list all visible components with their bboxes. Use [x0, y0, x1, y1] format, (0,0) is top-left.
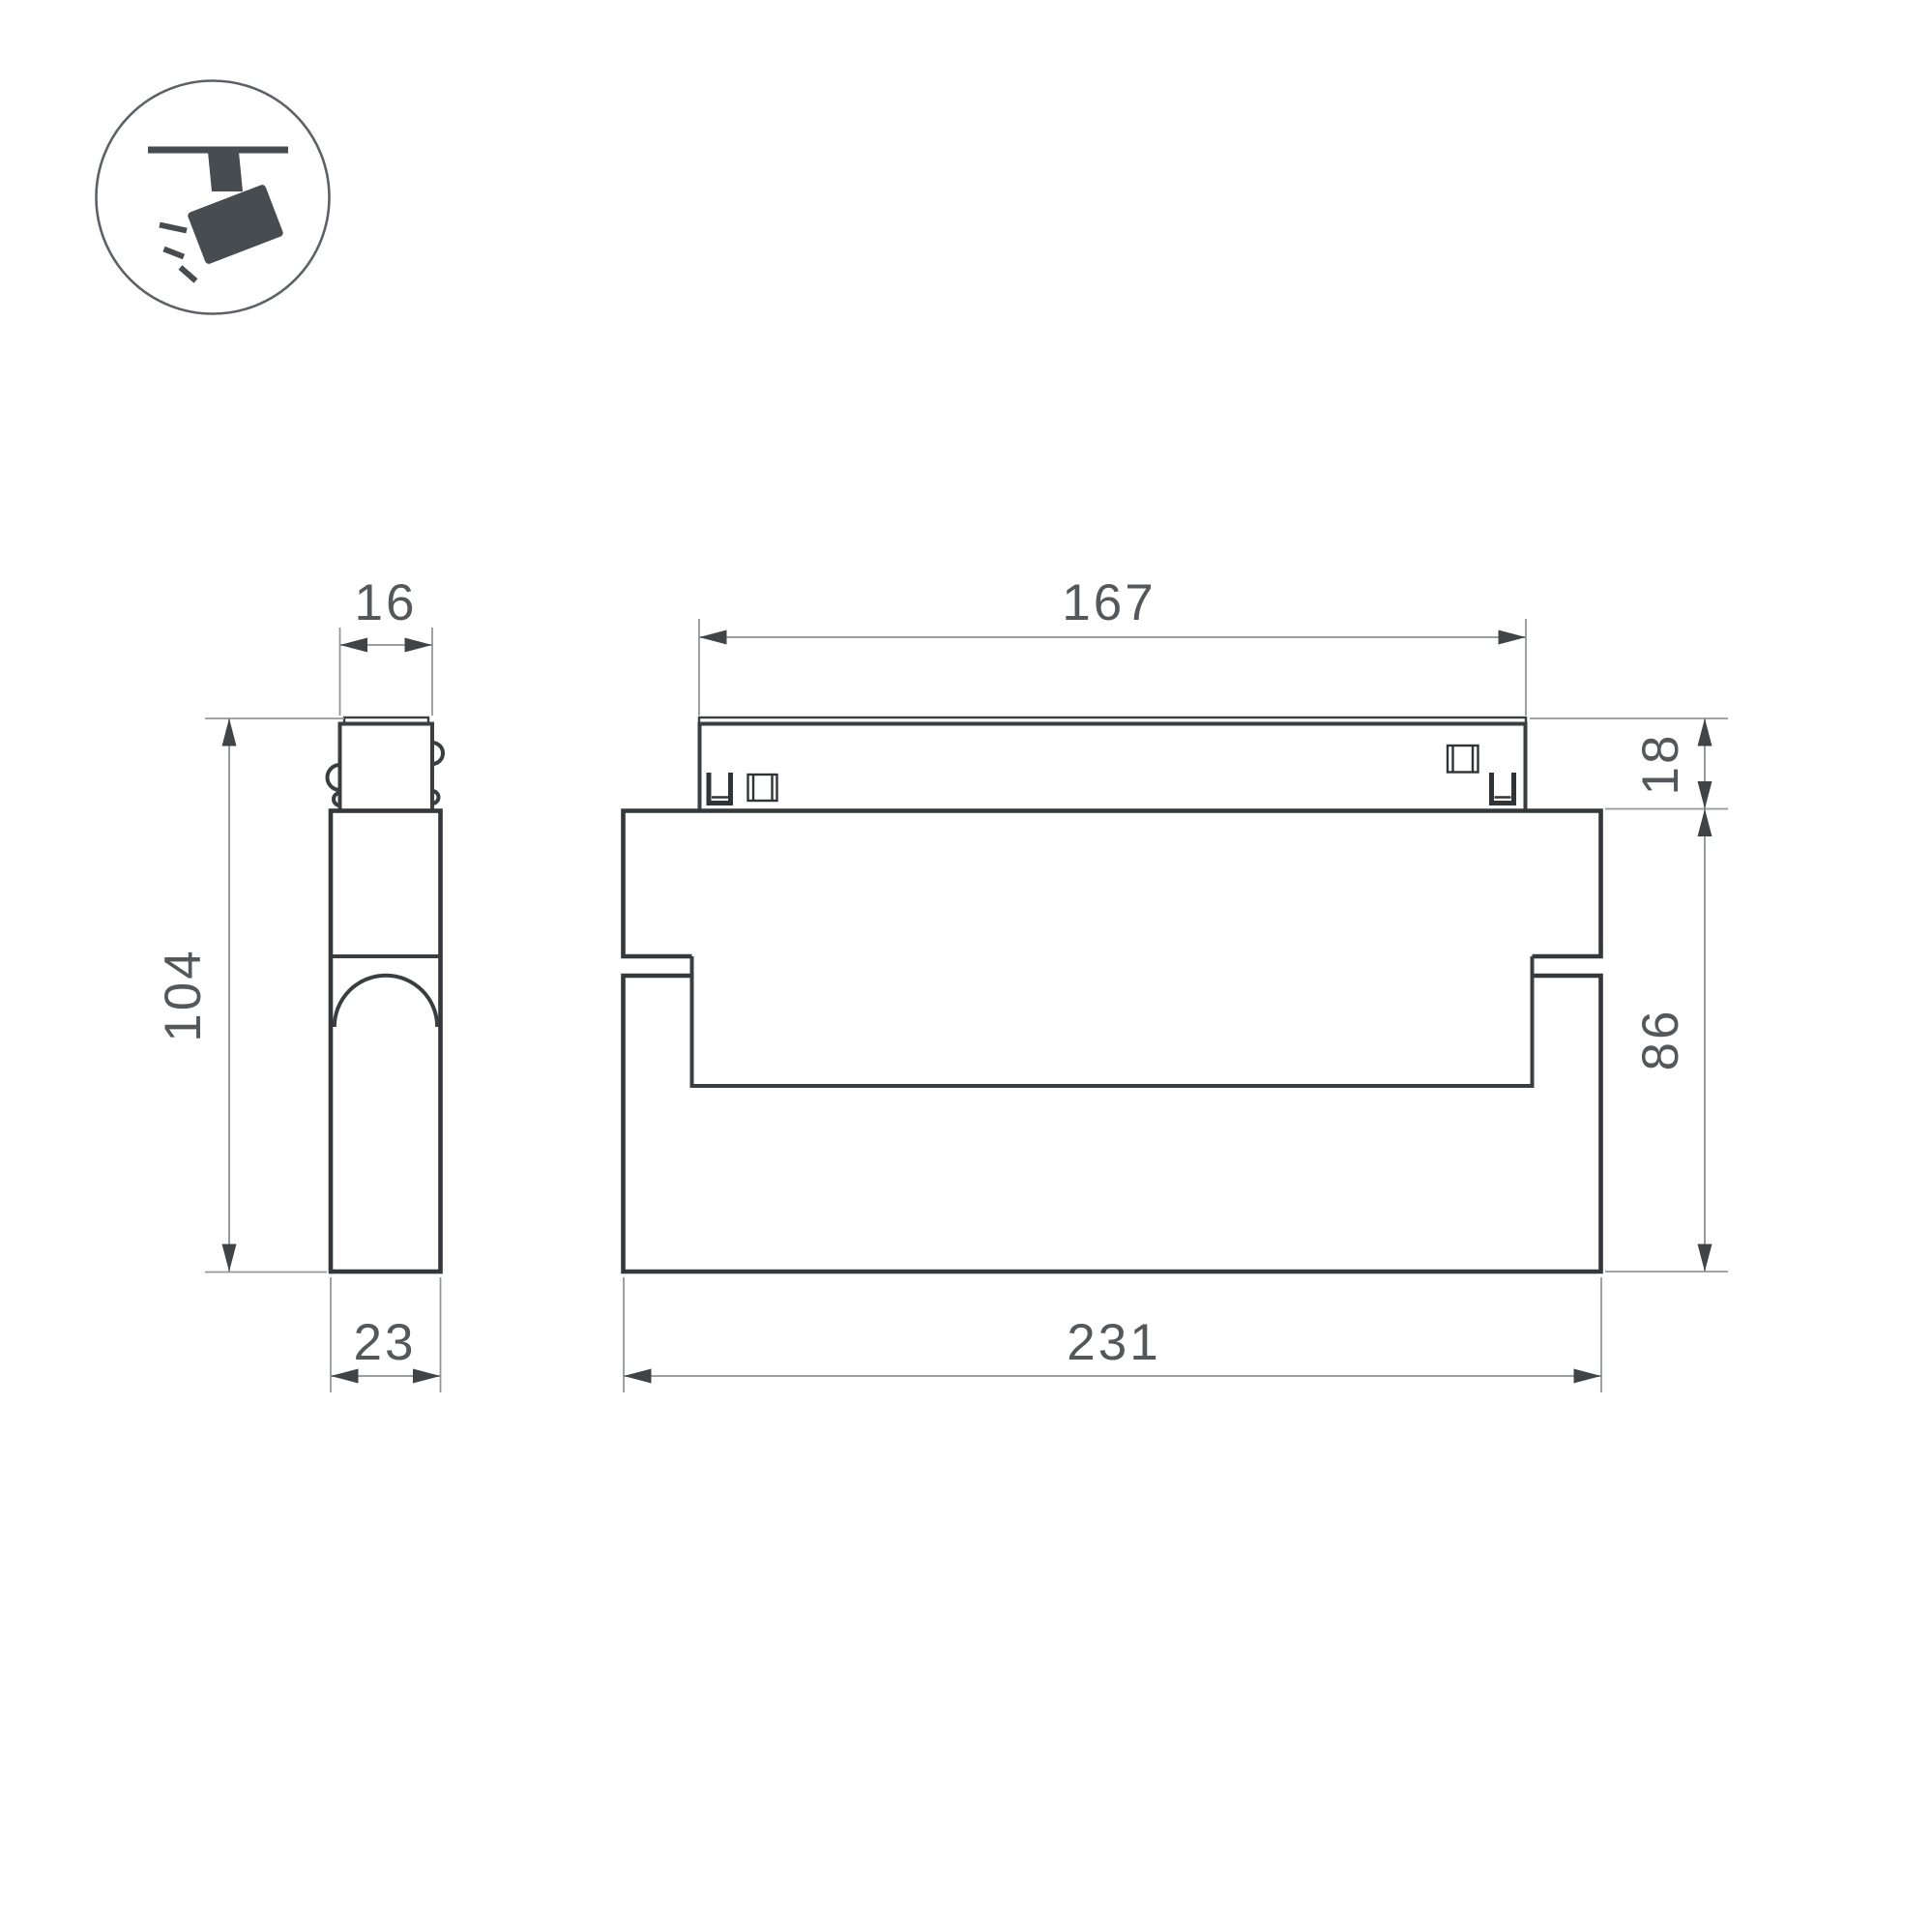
- arrow-right: [413, 1369, 441, 1384]
- arrow-up: [1698, 718, 1712, 746]
- arrow-left: [624, 1369, 652, 1384]
- icon-circle-border: [97, 81, 330, 314]
- front-clip-right-u: [1492, 773, 1514, 804]
- front-clip-left-u: [709, 773, 731, 804]
- dim-side-adapter-width: 16: [340, 574, 433, 716]
- side-view: [328, 717, 444, 1272]
- arrow-down: [1698, 1244, 1712, 1273]
- arrow-right: [1499, 630, 1527, 645]
- dim-front-adapter-height: 18: [1530, 718, 1728, 809]
- track-spotlight-icon: [97, 81, 330, 314]
- front-track-adapter: [700, 724, 1526, 811]
- dimension-drawing-page: 16 104 23: [0, 0, 1932, 1932]
- front-view: [624, 717, 1601, 1272]
- side-body: [331, 811, 441, 1273]
- arrow-left: [340, 638, 368, 653]
- arrow-down: [222, 1244, 237, 1273]
- arrow-up: [1698, 809, 1712, 837]
- dim-front-adapter-length: 167: [699, 574, 1526, 716]
- dim-label-104: 104: [155, 948, 212, 1041]
- arrow-left: [699, 630, 727, 645]
- front-body-face: [624, 811, 1601, 1273]
- arrow-up: [222, 718, 237, 746]
- dim-label-231: 231: [1067, 1314, 1160, 1371]
- dim-label-16: 16: [355, 574, 418, 631]
- side-lens-arch: [335, 976, 437, 1027]
- dim-label-23: 23: [354, 1314, 417, 1371]
- dim-side-total-height: 104: [155, 718, 344, 1273]
- track-stem: [208, 152, 243, 191]
- dim-front-body-height: 86: [1605, 809, 1728, 1273]
- luminaire-dimension-drawing: 16 104 23: [0, 0, 1932, 1932]
- dim-label-18: 18: [1632, 733, 1689, 796]
- dim-label-86: 86: [1632, 1009, 1689, 1071]
- arrow-right: [405, 638, 433, 653]
- dim-label-167: 167: [1062, 574, 1156, 631]
- arrow-right: [1574, 1369, 1602, 1384]
- dim-side-body-depth: 23: [331, 1277, 441, 1392]
- dim-front-body-length: 231: [624, 1277, 1601, 1392]
- side-track-adapter: [340, 724, 433, 811]
- arrow-down: [1698, 781, 1712, 809]
